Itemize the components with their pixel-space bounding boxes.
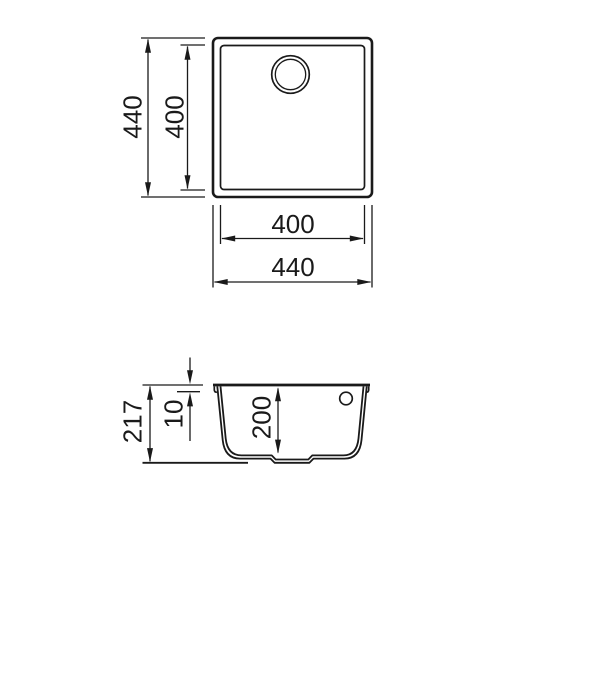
overflow-hole-circle	[340, 392, 353, 405]
arrowhead-up	[145, 39, 151, 53]
dim-label-bowl-depth: 200	[247, 396, 277, 439]
sink-dimension-drawing: 440 400 400	[0, 0, 600, 689]
dim-label-inner-height: 400	[160, 95, 190, 138]
section-bowl-inner-profile	[221, 386, 364, 459]
dim-inner-height: 400	[160, 45, 206, 190]
dim-label-rim-thickness: 10	[159, 400, 189, 429]
dim-label-outer-height: 440	[118, 95, 148, 138]
dim-inner-width: 400	[221, 205, 365, 244]
arrowhead-right	[357, 279, 371, 285]
arrowhead-left	[221, 236, 235, 242]
arrowhead-down	[185, 175, 191, 189]
sink-outer-outline	[213, 38, 372, 197]
technical-drawing-canvas: 440 400 400	[0, 0, 600, 689]
dim-rim-thickness: 10	[159, 358, 201, 442]
arrowhead-right	[350, 236, 364, 242]
sink-bowl-outline	[221, 46, 365, 190]
arrowhead-up	[147, 386, 153, 400]
dim-label-inner-width: 400	[271, 209, 314, 239]
drain-hole-inner-circle	[275, 59, 305, 89]
dim-label-outer-width: 440	[271, 252, 314, 282]
drain-hole-outer-circle	[272, 56, 310, 94]
arrowhead-up	[185, 46, 191, 60]
dim-bowl-depth: 200	[247, 387, 282, 453]
arrowhead-down	[187, 370, 193, 384]
arrowhead-down	[147, 448, 153, 462]
section-view: 217 10 200	[118, 358, 371, 463]
top-view: 440 400 400	[118, 38, 373, 288]
arrowhead-down	[145, 182, 151, 196]
dim-label-total-depth: 217	[118, 400, 148, 443]
section-bowl-outer-profile	[217, 386, 366, 462]
arrowhead-left	[214, 279, 228, 285]
arrowhead-down	[275, 440, 281, 454]
